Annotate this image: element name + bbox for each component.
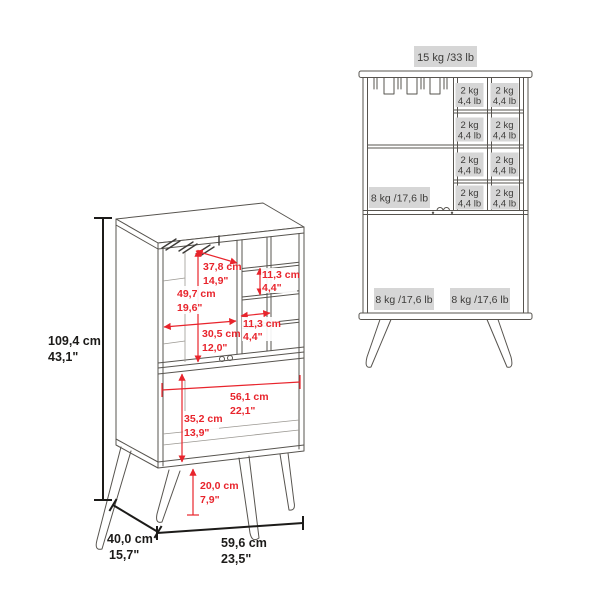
dim-total-height: 109,4 cm 43,1"	[48, 218, 112, 500]
svg-text:2 kg: 2 kg	[496, 120, 514, 131]
dim-label: 4,4"	[262, 282, 282, 294]
svg-text:4,4 lb: 4,4 lb	[493, 131, 516, 142]
capacity-label-bottom-left: 8 kg /17,6 lb	[375, 294, 432, 306]
dim-label: 30,5 cm	[202, 328, 241, 340]
dim-label: 59,6 cm	[221, 536, 267, 550]
dim-label: 19,6"	[177, 302, 202, 314]
svg-text:4,4 lb: 4,4 lb	[493, 199, 516, 210]
top-board	[359, 71, 532, 78]
dim-label: 23,5"	[221, 552, 251, 566]
svg-text:2 kg: 2 kg	[461, 188, 479, 199]
svg-text:4,4 lb: 4,4 lb	[458, 199, 481, 210]
hairpin-leg	[366, 320, 391, 368]
cubby-capacity-tag: 2 kg 4,4 lb	[491, 153, 519, 177]
svg-text:2 kg: 2 kg	[496, 188, 514, 199]
shelf-capacity-tag: 8 kg /17,6 lb	[369, 187, 430, 208]
dim-total-width: 59,6 cm 23,5"	[157, 516, 303, 566]
capacity-label-shelf: 8 kg /17,6 lb	[371, 193, 428, 205]
dim-label: 13,9"	[184, 427, 209, 439]
dim-label: 40,0 cm	[107, 532, 153, 546]
capacity-view: 15 kg /33 lb	[359, 46, 532, 367]
cabinet-side-panel	[116, 219, 158, 468]
svg-text:4,4 lb: 4,4 lb	[458, 131, 481, 142]
cubby-capacity-tag: 2 kg 4,4 lb	[491, 83, 519, 107]
product-dimension-sheet: 37,8 cm 14,9" 49,7 cm 19,6" 11,3 cm 4,4"…	[0, 0, 600, 600]
svg-text:2 kg: 2 kg	[496, 86, 514, 97]
capacity-tag-top: 15 kg /33 lb	[414, 46, 477, 67]
hairpin-leg	[280, 453, 294, 510]
cubby-capacity-tag: 2 kg 4,4 lb	[456, 83, 484, 107]
dim-leg-height: 20,0 cm 7,9"	[187, 469, 239, 515]
dim-cubby-width: 11,3 cm 4,4"	[241, 313, 281, 343]
cubby-capacity-tag: 2 kg 4,4 lb	[456, 118, 484, 142]
hairpin-leg	[157, 470, 180, 522]
dim-label: 49,7 cm	[177, 288, 216, 300]
dimension-view: 37,8 cm 14,9" 49,7 cm 19,6" 11,3 cm 4,4"…	[48, 203, 304, 566]
dim-cubby-height: 11,3 cm 4,4"	[260, 268, 300, 295]
svg-text:2 kg: 2 kg	[461, 86, 479, 97]
dim-label: 15,7"	[109, 548, 139, 562]
dim-label: 11,3 cm	[262, 269, 300, 281]
dim-label: 12,0"	[202, 342, 227, 354]
cubby-capacity-tag: 2 kg 4,4 lb	[456, 186, 484, 210]
dim-label: 20,0 cm	[200, 480, 239, 492]
hairpin-legs-front	[366, 320, 512, 368]
cubby-capacity-tag: 2 kg 4,4 lb	[491, 118, 519, 142]
svg-text:4,4 lb: 4,4 lb	[458, 166, 481, 177]
dim-label: 11,3 cm	[243, 318, 281, 330]
dim-label: 7,9"	[200, 494, 220, 506]
dim-label: 4,4"	[243, 331, 263, 343]
cubby-capacity-tag: 2 kg 4,4 lb	[456, 153, 484, 177]
svg-text:2 kg: 2 kg	[461, 155, 479, 166]
capacity-label-bottom-right: 8 kg /17,6 lb	[451, 294, 508, 306]
dim-label: 22,1"	[230, 405, 255, 417]
cubby-capacity-tag: 2 kg 4,4 lb	[491, 186, 519, 210]
dim-label: 56,1 cm	[230, 391, 269, 403]
svg-text:4,4 lb: 4,4 lb	[458, 96, 481, 107]
dim-total-depth: 40,0 cm 15,7"	[107, 499, 162, 562]
dim-label: 35,2 cm	[184, 413, 223, 425]
dim-label: 14,9"	[203, 275, 228, 287]
hairpin-leg	[487, 320, 512, 368]
capacity-label-top-surface: 15 kg /33 lb	[417, 52, 474, 64]
spec-drawing: 37,8 cm 14,9" 49,7 cm 19,6" 11,3 cm 4,4"…	[0, 0, 600, 600]
dim-label: 109,4 cm	[48, 334, 101, 348]
dim-label: 43,1"	[48, 350, 78, 364]
svg-text:2 kg: 2 kg	[496, 155, 514, 166]
svg-text:2 kg: 2 kg	[461, 120, 479, 131]
svg-text:4,4 lb: 4,4 lb	[493, 166, 516, 177]
svg-text:4,4 lb: 4,4 lb	[493, 96, 516, 107]
dim-label: 37,8 cm	[203, 261, 242, 273]
bottom-board	[359, 313, 532, 320]
